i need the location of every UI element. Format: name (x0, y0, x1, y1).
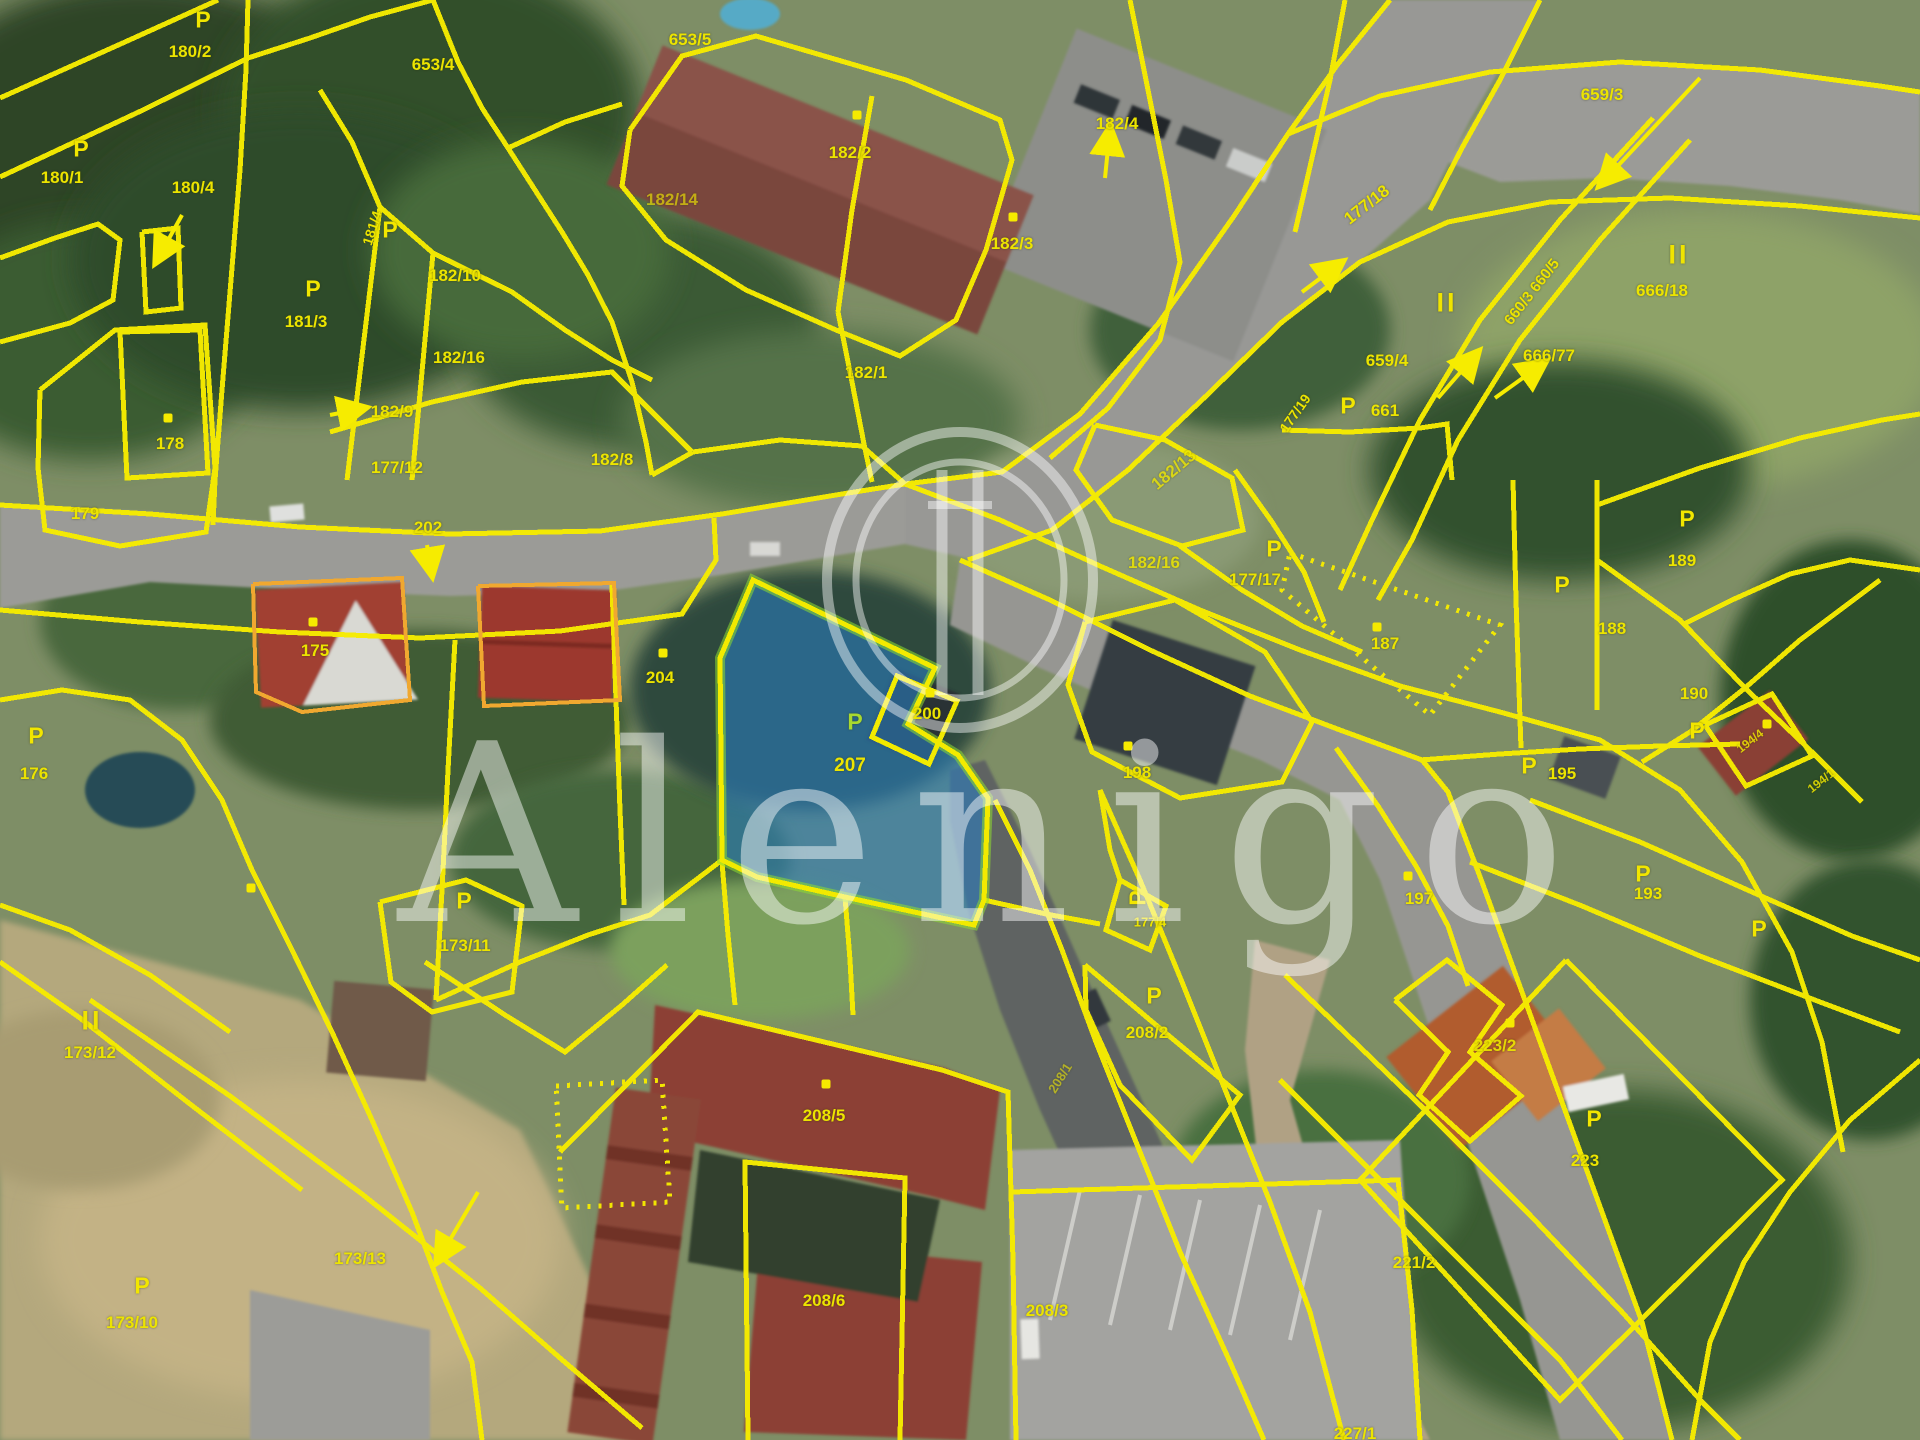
building-centroid-dot (1763, 720, 1772, 729)
parcel-label: 223 (1571, 1151, 1599, 1171)
cadastre-p-icon: P (1146, 983, 1161, 1010)
map-canvas[interactable]: 180/2653/4653/5180/1180/4181/3181/4182/1… (0, 0, 1920, 1440)
parcel-label: 177/17 (1229, 570, 1281, 590)
parcel-label: 182/4 (1096, 114, 1139, 134)
parcel-label: 178 (156, 434, 184, 454)
parcel-label: 176 (20, 764, 48, 784)
building-centroid-dot (309, 618, 318, 627)
parcel-label: 182/3 (991, 234, 1034, 254)
parcel-label: 182/16 (1128, 553, 1180, 573)
cadastre-p-icon: P (847, 709, 862, 736)
parcel-label: 659/4 (1366, 351, 1409, 371)
parcel-label: 180/4 (172, 178, 215, 198)
parcel-label: 181/3 (285, 312, 328, 332)
cadastre-p-icon: P (1679, 506, 1694, 533)
parcel-label: 208/5 (803, 1106, 846, 1126)
building-centroid-dot (926, 689, 935, 698)
parcel-label: 221/2 (1393, 1253, 1436, 1273)
aerial-photo-layer (0, 0, 1920, 1440)
parcel-label: 197 (1405, 889, 1433, 909)
parcel-label: 173/11 (439, 936, 490, 956)
cadastre-p-icon: P (1586, 1106, 1601, 1133)
building-centroid-dot (1373, 623, 1382, 632)
parcel-label: 223/2 (1474, 1036, 1517, 1056)
cadastre-p-icon: P (1554, 572, 1569, 599)
cadastre-p-icon: P (1125, 890, 1152, 905)
cadastre-p-icon: P (1751, 916, 1766, 943)
parcel-label: 189 (1668, 551, 1696, 571)
building-centroid-dot (164, 414, 173, 423)
parcel-label: 179 (71, 504, 99, 524)
cadastre-p-icon: P (1689, 718, 1704, 745)
parcel-label: 188 (1598, 619, 1626, 639)
parcel-label: 173/12 (64, 1043, 116, 1063)
building-centroid-dot (1404, 872, 1413, 881)
parcel-label: 177/12 (371, 458, 423, 478)
cadastre-ii-mark: II (1668, 240, 1689, 271)
building-centroid-dot (1506, 1019, 1515, 1028)
boundary-arrow (330, 408, 365, 415)
cadastre-p-icon: P (134, 1273, 149, 1300)
parcel-label: 653/4 (412, 55, 455, 75)
building-centroid-dot (853, 111, 862, 120)
parcel-label: 182/9 (371, 402, 414, 422)
cadastre-p-icon: P (195, 7, 210, 34)
parcel-label: 204 (646, 668, 674, 688)
cadastre-ii-mark: II (1436, 288, 1457, 319)
parcel-label: 198 (1123, 763, 1151, 783)
cadastre-p-icon: P (73, 136, 88, 163)
parcel-label: 182/8 (591, 450, 634, 470)
parcel-label: 200 (913, 704, 941, 724)
cadastre-p-icon: P (1521, 753, 1536, 780)
cadastre-ii-mark: II (81, 1006, 102, 1037)
building-centroid-dot (659, 649, 668, 658)
cadastre-p-icon: P (28, 723, 43, 750)
cadastre-p-icon: P (1266, 536, 1281, 563)
parcel-label: 187 (1371, 634, 1399, 654)
cadastre-p-icon: P (1340, 393, 1355, 420)
parcel-label: 182/14 (646, 190, 698, 210)
parcel-label: 661 (1371, 401, 1399, 421)
parcel-label: 190 (1680, 684, 1708, 704)
parcel-label: 182/10 (429, 266, 481, 286)
cadastre-p-icon: P (456, 888, 471, 915)
parcel-label: 653/5 (669, 30, 712, 50)
building-centroid-dot (1124, 742, 1133, 751)
parcel-label: 180/1 (41, 168, 84, 188)
building-centroid-dot (822, 1080, 831, 1089)
parcel-label: 208/6 (803, 1291, 846, 1311)
parcel-label: 173/10 (106, 1313, 158, 1333)
parcel-label: 180/2 (169, 42, 212, 62)
parcel-label: 208/3 (1026, 1301, 1069, 1321)
parcel-label: 666/18 (1636, 281, 1688, 301)
building-centroid-dot (247, 884, 256, 893)
cadastre-p-icon: P (382, 217, 397, 244)
parcel-label: 177/4 (1134, 915, 1167, 930)
parcel-label: 175 (301, 641, 329, 661)
parcel-label: 173/13 (334, 1249, 386, 1269)
parcel-label: 207 (834, 755, 866, 777)
parcel-label: 202 (414, 518, 442, 538)
cadastre-p-icon: P (305, 276, 320, 303)
parcel-label: 182/16 (433, 348, 485, 368)
parcel-label: 659/3 (1581, 85, 1624, 105)
cadastre-p-icon: P (1635, 861, 1650, 888)
building-centroid-dot (1009, 213, 1018, 222)
parcel-label: 666/77 (1523, 346, 1575, 366)
parcel-label: 195 (1548, 764, 1576, 784)
parcel-label: 182/1 (845, 363, 888, 383)
parcel-label: 227/1 (1334, 1424, 1377, 1440)
parcel-label: 208/2 (1126, 1023, 1169, 1043)
parcel-label: 182/2 (829, 143, 872, 163)
